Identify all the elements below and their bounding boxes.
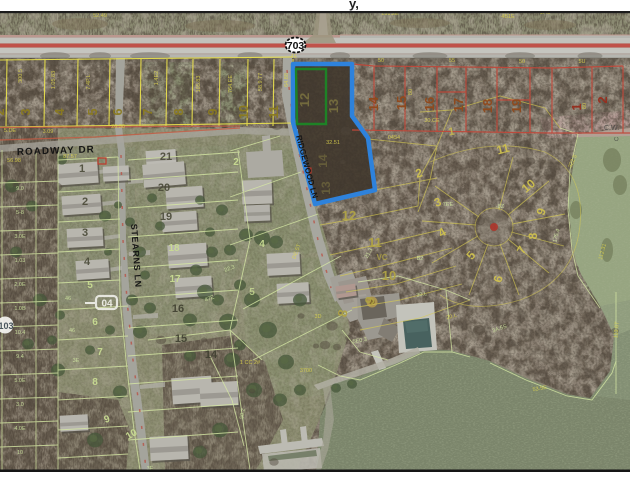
- svg-text:9.4: 9.4: [16, 354, 24, 360]
- svg-text:16: 16: [422, 97, 437, 111]
- svg-text:103: 103: [0, 321, 14, 331]
- svg-text:19: 19: [509, 99, 524, 113]
- svg-text:1.4E2: 1.4E2: [154, 71, 160, 85]
- svg-text:8: 8: [172, 108, 186, 115]
- svg-text:18: 18: [168, 243, 180, 254]
- svg-text:O: O: [614, 137, 619, 143]
- svg-text:11: 11: [368, 235, 382, 250]
- svg-text:16: 16: [172, 303, 184, 315]
- svg-text:703: 703: [287, 40, 305, 52]
- svg-text:4.0E: 4.0E: [14, 426, 26, 432]
- svg-text:6: 6: [92, 317, 98, 328]
- svg-text:32.51: 32.51: [326, 140, 340, 146]
- svg-text:7: 7: [141, 108, 155, 115]
- svg-text:8: 8: [526, 232, 540, 239]
- svg-text:2: 2: [0, 108, 7, 115]
- svg-text:50: 50: [378, 58, 384, 64]
- svg-text:8: 8: [92, 377, 98, 388]
- svg-text:11: 11: [267, 105, 281, 118]
- svg-text:12: 12: [342, 208, 356, 223]
- svg-text:30.CE: 30.CE: [424, 118, 440, 124]
- svg-text:3.0: 3.0: [16, 402, 24, 408]
- svg-text:21: 21: [160, 151, 172, 163]
- svg-text:9: 9: [206, 108, 220, 115]
- svg-text:1: 1: [79, 163, 85, 175]
- svg-text:1.05.83: 1.05.83: [51, 71, 57, 89]
- svg-text:18: 18: [480, 99, 495, 113]
- svg-text:105.83: 105.83: [196, 76, 202, 93]
- svg-text:14: 14: [205, 349, 218, 361]
- svg-text:7EE: 7EE: [443, 202, 454, 208]
- svg-text:2: 2: [595, 96, 610, 103]
- svg-text:5.DE: 5.DE: [4, 128, 17, 134]
- svg-text:55: 55: [449, 58, 455, 64]
- svg-text:5: 5: [87, 280, 93, 291]
- svg-text:300.5: 300.5: [18, 69, 24, 83]
- svg-text:2: 2: [233, 157, 239, 168]
- svg-text:0454: 0454: [388, 135, 400, 141]
- svg-text:1.0B: 1.0B: [14, 306, 26, 312]
- svg-text:9.0: 9.0: [16, 186, 24, 192]
- svg-text:46: 46: [65, 296, 71, 302]
- svg-text:17: 17: [451, 98, 466, 112]
- svg-text:3E: 3E: [73, 358, 80, 364]
- svg-text:58.9.77: 58.9.77: [258, 73, 264, 91]
- svg-text:-8Z: -8Z: [496, 204, 505, 210]
- svg-text:4: 4: [84, 256, 91, 268]
- svg-text:1 CC 2#: 1 CC 2#: [240, 360, 261, 366]
- svg-text:13: 13: [319, 181, 333, 195]
- svg-text:4B1E: 4B1E: [501, 14, 515, 20]
- svg-text:13: 13: [326, 99, 341, 113]
- svg-text:1.03: 1.03: [15, 258, 26, 264]
- svg-text:64.88: 64.88: [284, 73, 290, 87]
- svg-text:5: 5: [249, 287, 255, 298]
- svg-text:4: 4: [53, 108, 67, 115]
- svg-text:3D: 3D: [314, 314, 321, 320]
- svg-text:10: 10: [17, 450, 23, 456]
- svg-text:6: 6: [111, 108, 125, 115]
- svg-text:4E: 4E: [291, 54, 298, 60]
- svg-text:14: 14: [316, 154, 330, 168]
- svg-text:46: 46: [69, 328, 75, 334]
- svg-text:04: 04: [101, 299, 113, 310]
- svg-text:80: 80: [582, 103, 588, 109]
- svg-text:C.W.: C.W.: [604, 125, 619, 132]
- svg-text:56.98: 56.98: [7, 158, 21, 164]
- svg-text:15: 15: [175, 333, 187, 345]
- svg-text:764.EE: 764.EE: [228, 75, 234, 93]
- svg-text:19: 19: [160, 211, 172, 223]
- svg-text:5-8: 5-8: [16, 210, 24, 216]
- svg-text:10: 10: [237, 105, 251, 119]
- svg-text:7: 7: [97, 347, 103, 358]
- svg-text:26.30: 26.30: [111, 124, 125, 130]
- svg-text:2: 2: [82, 196, 88, 208]
- svg-text:20: 20: [158, 182, 170, 194]
- svg-text:3: 3: [19, 108, 33, 115]
- svg-text:10: 10: [382, 268, 396, 283]
- svg-text:7.4P.L: 7.4P.L: [86, 74, 92, 89]
- svg-text:5: 5: [86, 108, 100, 115]
- svg-text:12: 12: [297, 93, 312, 107]
- svg-text:5U: 5U: [578, 59, 585, 65]
- svg-text:10.4: 10.4: [15, 330, 26, 336]
- svg-text:50: 50: [519, 59, 525, 65]
- svg-text:52.49: 52.49: [93, 13, 107, 19]
- svg-text:y,: y,: [349, 0, 359, 11]
- svg-text:VC: VC: [376, 253, 387, 262]
- svg-text:2.0E: 2.0E: [14, 282, 26, 288]
- svg-text:3: 3: [82, 227, 88, 239]
- svg-text:3.09: 3.09: [43, 129, 54, 135]
- svg-text:14: 14: [366, 96, 381, 111]
- svg-text:5.0E: 5.0E: [14, 378, 26, 384]
- svg-text:3700: 3700: [300, 368, 312, 374]
- svg-text:3.0E: 3.0E: [14, 234, 26, 240]
- svg-text:B2: B2: [417, 256, 424, 262]
- svg-text:17: 17: [169, 274, 181, 285]
- svg-text:80: 80: [408, 89, 414, 95]
- svg-text:4: 4: [259, 239, 265, 250]
- svg-text:15: 15: [394, 96, 409, 110]
